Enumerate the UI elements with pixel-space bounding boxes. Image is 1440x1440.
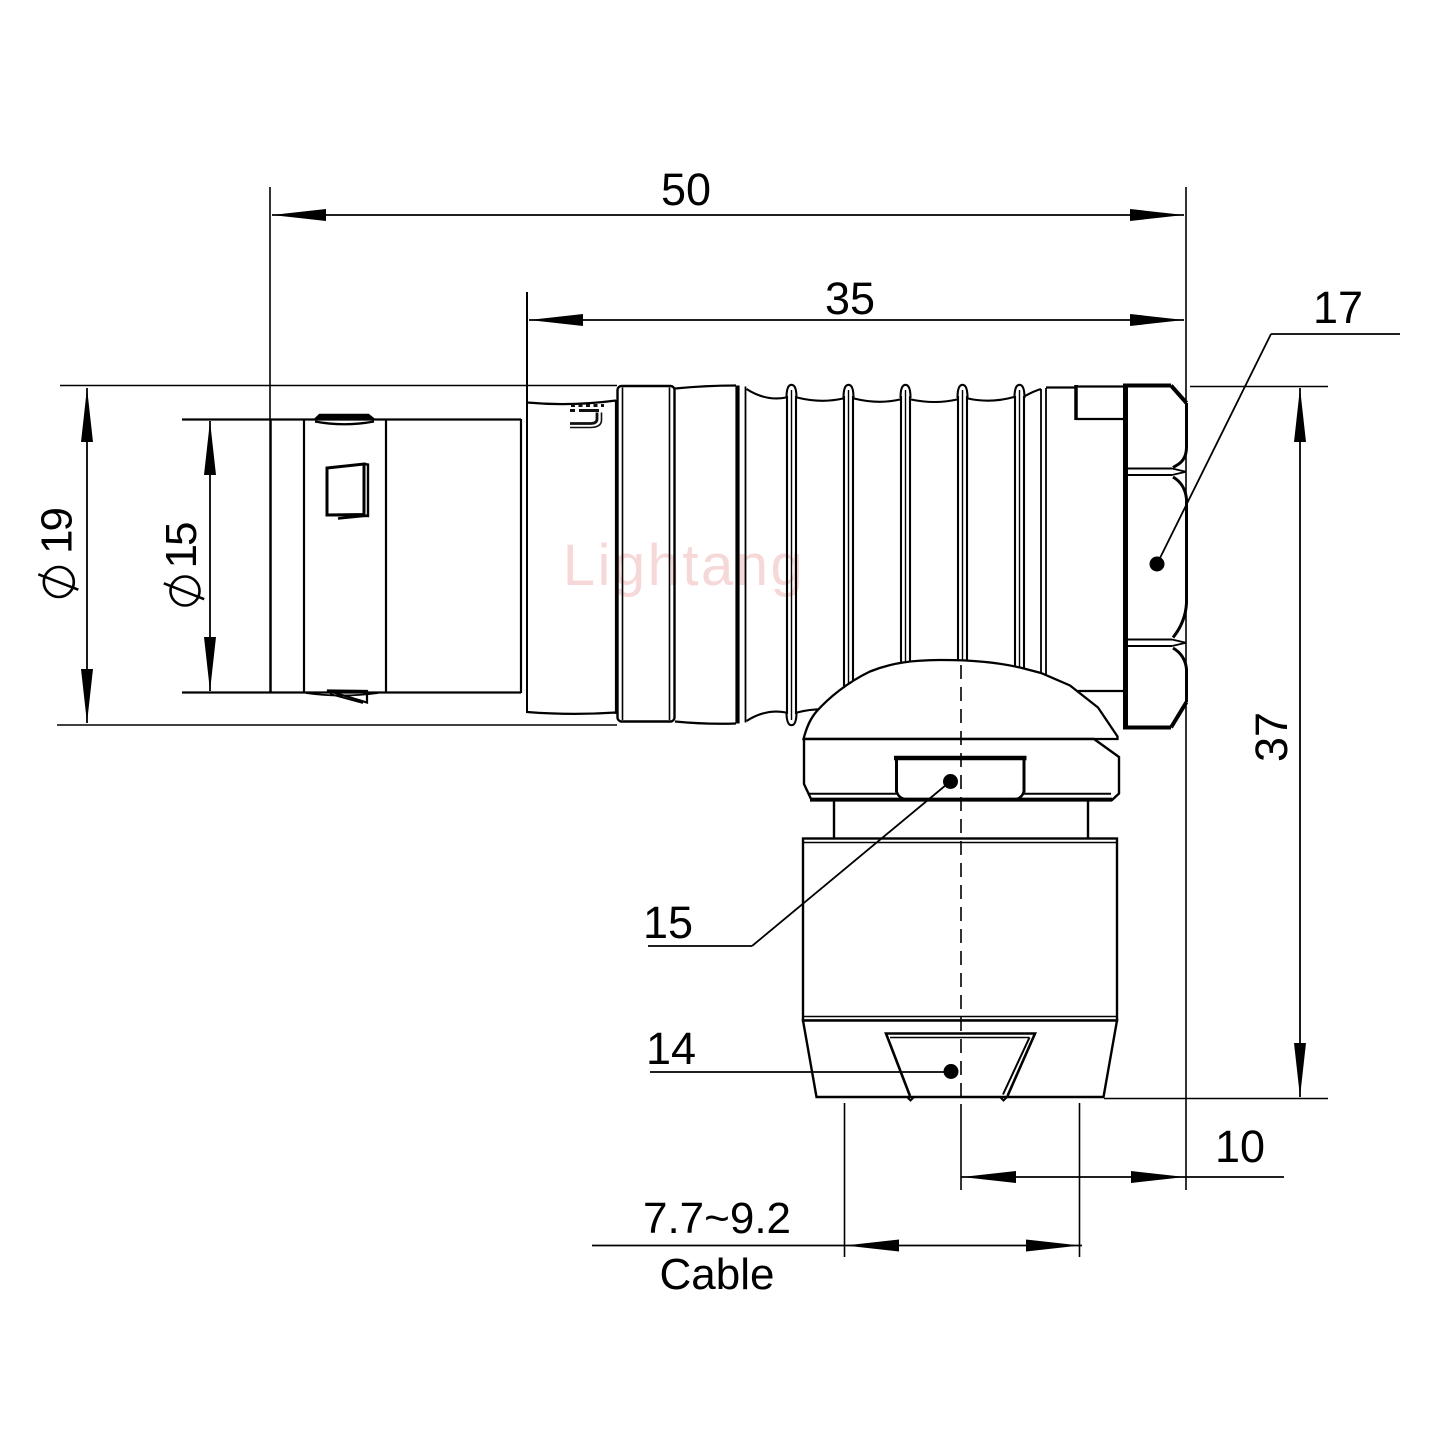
svg-text:17: 17 <box>1313 282 1363 333</box>
svg-text:15: 15 <box>643 897 693 948</box>
svg-text:19: 19 <box>33 509 82 554</box>
svg-text:Lightang: Lightang <box>563 533 806 598</box>
svg-text:10: 10 <box>1215 1121 1265 1172</box>
svg-text:15: 15 <box>157 523 206 568</box>
svg-text:Cable: Cable <box>660 1250 775 1299</box>
svg-text:37: 37 <box>1246 712 1297 762</box>
svg-text:50: 50 <box>661 164 711 215</box>
svg-text:7.7~9.2: 7.7~9.2 <box>643 1194 791 1243</box>
svg-text:14: 14 <box>646 1023 696 1074</box>
svg-text:35: 35 <box>825 273 875 324</box>
